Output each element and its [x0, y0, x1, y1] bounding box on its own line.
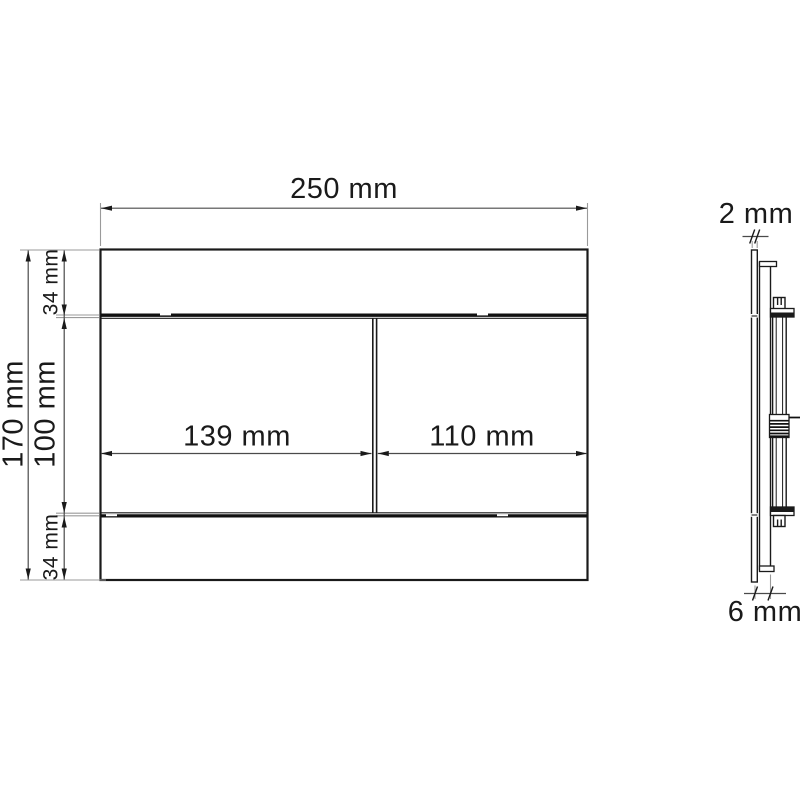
top-strip-dimension-label: 34 mm — [40, 249, 63, 316]
plate-outline — [101, 250, 588, 581]
mounting-mechanism — [770, 298, 800, 527]
mounting-depth-label: 6 mm — [728, 596, 800, 628]
top-mounting-flange-fill — [771, 313, 795, 318]
height-dimension-label: 170 mm — [0, 360, 30, 468]
depth-dimension: 6 mm — [728, 575, 800, 629]
seam-notch — [160, 313, 171, 315]
bottom-screw-head — [774, 516, 786, 527]
arrowhead-down — [62, 502, 67, 513]
arrowhead-left — [101, 206, 112, 211]
arrowhead-up — [26, 251, 31, 262]
arrowhead-up — [62, 318, 67, 329]
backing-frame-top-cap — [760, 262, 777, 267]
arrowhead-right — [576, 206, 587, 211]
segment-height-dimension: 34 mm 100 mm 34 mm — [30, 249, 100, 581]
center-section-dimension-label: 100 mm — [30, 360, 62, 468]
backing-frame-bottom-cap — [760, 566, 775, 572]
arrowhead-down — [26, 569, 31, 580]
spring-coil-windings — [770, 418, 800, 437]
bottom-strip-dimension-label: 34 mm — [40, 514, 63, 581]
bottom-mounting-flange-fill — [771, 508, 795, 513]
width-dimension-label: 250 mm — [290, 173, 398, 205]
flush-plate-dimension-drawing: 250 mm 170 mm 34 mm 100 mm 34 mm 139 mm — [0, 0, 800, 801]
right-button-dimension-label: 110 mm — [429, 421, 535, 453]
seam-notch — [477, 313, 488, 315]
technical-drawing-page: 250 mm 170 mm 34 mm 100 mm 34 mm 139 mm — [0, 0, 800, 801]
left-button-dimension-label: 139 mm — [183, 421, 291, 453]
side-view — [751, 250, 800, 582]
front-view — [101, 250, 588, 581]
plate-thickness-label: 2 mm — [719, 198, 794, 230]
seam-notch — [497, 514, 508, 516]
width-dimension: 250 mm — [101, 173, 588, 246]
seam-notch — [106, 514, 117, 516]
thickness-dimension: 2 mm — [719, 198, 794, 248]
backing-frame — [760, 263, 771, 570]
front-plate-profile — [752, 250, 758, 582]
top-screw-head — [774, 298, 786, 310]
